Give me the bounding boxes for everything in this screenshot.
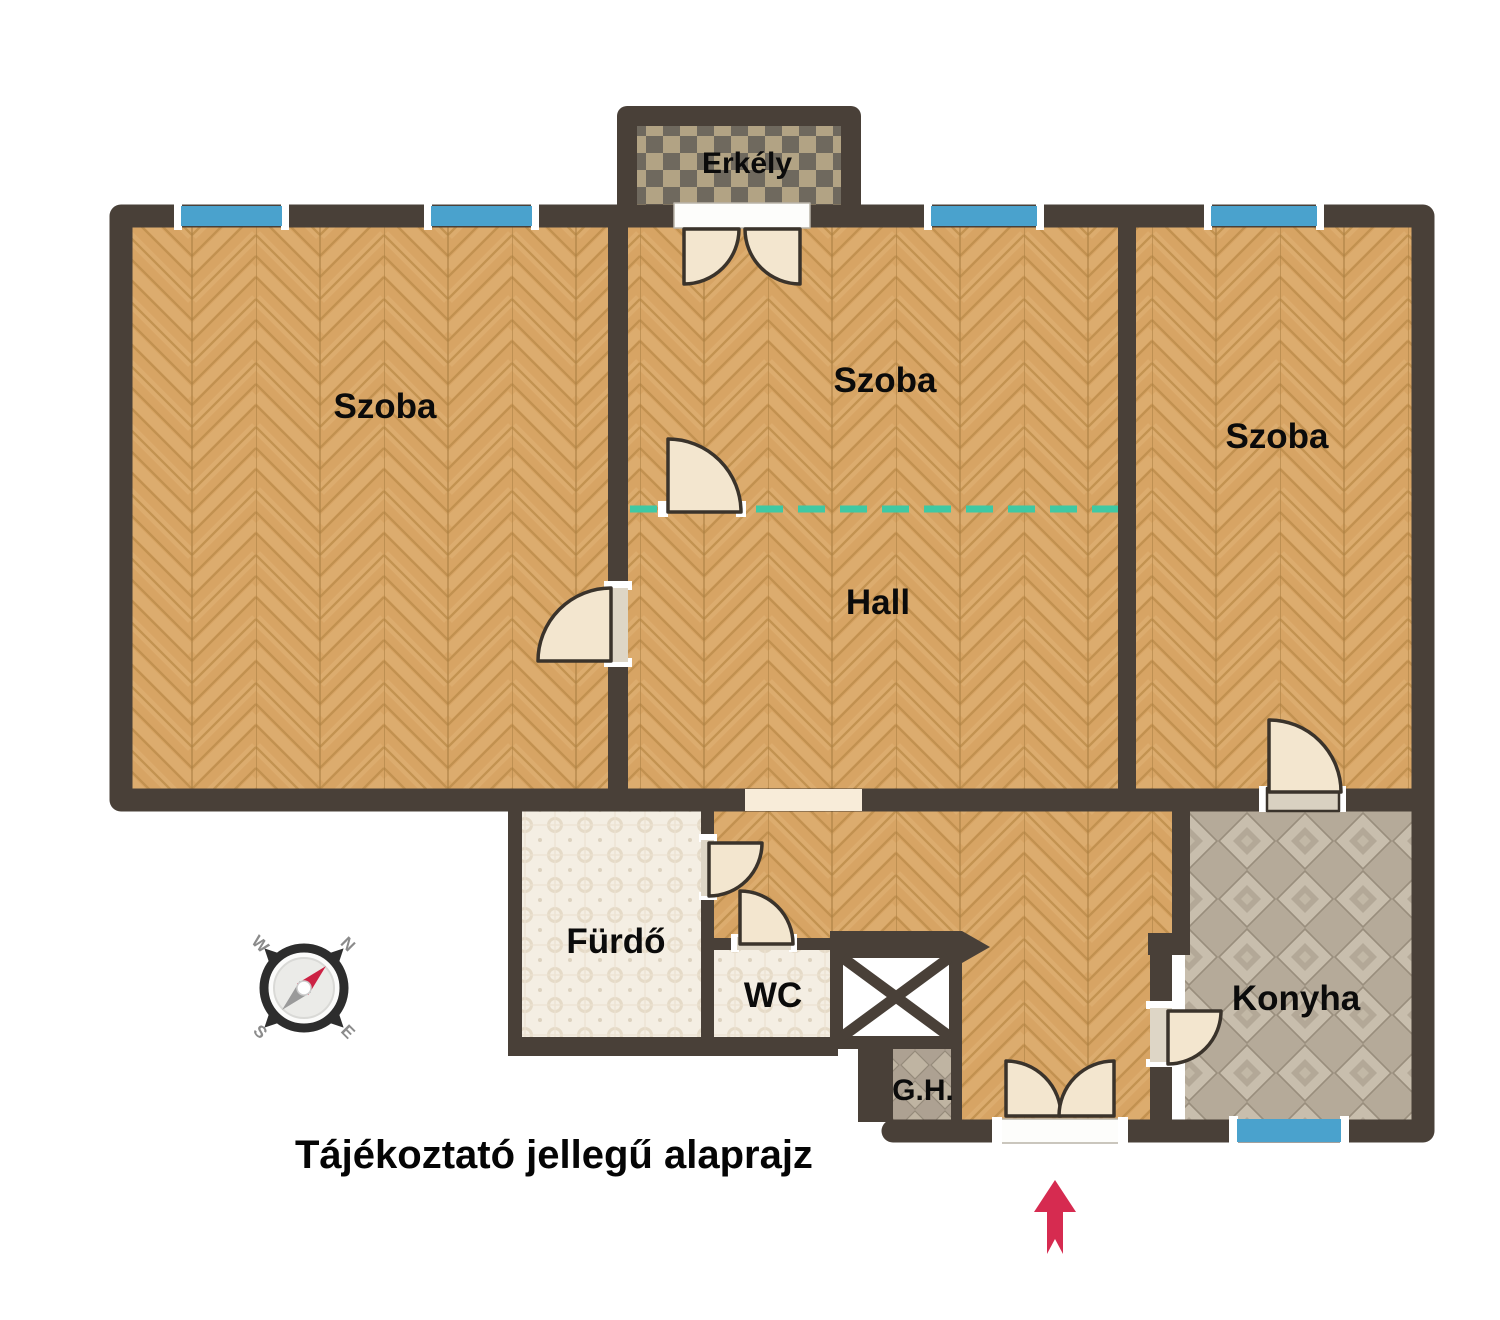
wall-right-partition: [1118, 216, 1136, 800]
label-szoba-right: Szoba: [1225, 417, 1329, 456]
window-szoba-left-1: [174, 202, 289, 230]
wall-left-partition: [608, 216, 628, 800]
wall-bath-bottom: [508, 1037, 838, 1056]
caption: Tájékoztató jellegű alaprajz: [295, 1133, 813, 1177]
floor-kitchen: [1185, 805, 1417, 1123]
floor-szoba-left: [120, 215, 620, 805]
passage-hall-corridor: [745, 789, 862, 811]
wall-bath-left: [508, 800, 522, 1050]
window-kitchen: [1229, 1116, 1349, 1146]
shaft-light-well: [843, 958, 949, 1036]
label-utility: G.H.: [892, 1074, 954, 1107]
entrance-arrow-icon: [1034, 1180, 1076, 1254]
window-szoba-left-2: [424, 202, 539, 230]
floor-szoba-right: [1130, 215, 1420, 805]
label-bathroom: Fürdő: [566, 922, 665, 961]
label-wc: WC: [744, 976, 802, 1015]
wall-kitchen-step: [1148, 933, 1190, 955]
wall-kitchen-left-upper: [1172, 799, 1190, 939]
floorplan-canvas: Erkély Szoba Szoba Szoba Hall Fürdő WC K…: [0, 0, 1500, 1320]
label-kitchen: Konyha: [1232, 979, 1361, 1018]
window-szoba-right: [1204, 202, 1324, 230]
label-szoba-middle: Szoba: [833, 361, 937, 400]
wall-shaft-top: [830, 931, 962, 947]
compass-rose: N E S W: [204, 888, 402, 1086]
label-szoba-left: Szoba: [333, 387, 437, 426]
label-balcony: Erkély: [702, 147, 792, 180]
window-szoba-middle: [924, 202, 1044, 230]
wall-gh-left: [858, 1040, 893, 1122]
label-hall: Hall: [846, 583, 910, 622]
